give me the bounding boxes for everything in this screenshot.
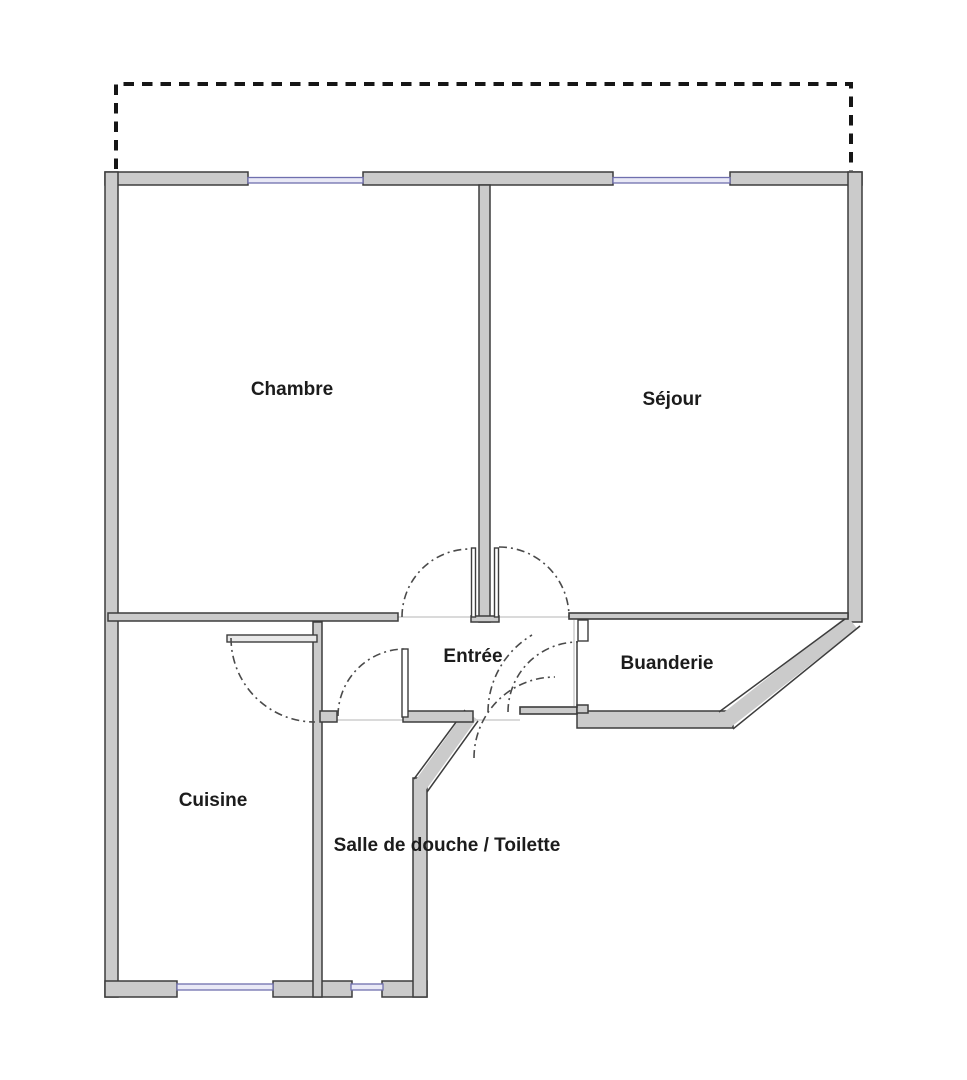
laundry-bottom-wall (577, 711, 733, 728)
floor-transition-lines (337, 617, 574, 720)
shower-room-window (351, 984, 383, 990)
bedroom-door-arc (402, 549, 470, 617)
terrace-dashed-outline (116, 84, 851, 171)
bedroom-livingroom-wall (479, 185, 490, 622)
shower-room-door-leaf (402, 649, 408, 717)
livingroom-bottom-wall (569, 613, 848, 619)
floorplan-page: Chambre Séjour Entrée Buanderie Cuisine … (0, 0, 967, 1080)
windows (177, 178, 730, 991)
floorplan: Chambre Séjour Entrée Buanderie Cuisine … (0, 0, 967, 1080)
laundry-wall-corner (577, 705, 588, 713)
top-wall-mid-segment (363, 172, 613, 185)
kitchen-window (177, 984, 273, 990)
kitchen-door-arc (231, 638, 315, 722)
laundry-diagonal-wall (719, 619, 860, 729)
room-label-entree: Entrée (443, 646, 502, 667)
livingroom-door-arc (499, 547, 569, 617)
laundry-door-jamb-stub (578, 620, 588, 641)
hall-bottom-wall-left-stub (320, 711, 337, 722)
front-door-side-wall (520, 707, 577, 714)
top-wall-right-segment (730, 172, 862, 185)
bottom-wall-left-segment (105, 981, 177, 997)
laundry-door-arc-inner (508, 642, 578, 712)
front-door-arc (474, 677, 555, 758)
bedroom-door-jamb (472, 548, 476, 617)
right-wall (848, 172, 862, 622)
room-label-cuisine: Cuisine (179, 790, 248, 811)
shower-room-right-wall (413, 778, 427, 997)
hall-bottom-wall-right-segment (403, 711, 473, 722)
bedroom-window (248, 178, 363, 184)
livingroom-door-jamb (495, 548, 499, 617)
room-label-sejour: Séjour (642, 389, 702, 410)
left-wall (105, 172, 118, 997)
bedroom-bottom-wall (108, 613, 398, 621)
shower-room-door-arc (338, 649, 405, 716)
interior-walls (108, 185, 848, 997)
room-label-salle-de-douche: Salle de douche / Toilette (334, 835, 561, 856)
top-wall-left-segment (105, 172, 248, 185)
livingroom-window (613, 178, 730, 184)
kitchen-right-wall (313, 622, 322, 997)
room-label-chambre: Chambre (251, 379, 333, 400)
kitchen-door-leaf (227, 635, 317, 642)
room-label-buanderie: Buanderie (621, 653, 714, 674)
